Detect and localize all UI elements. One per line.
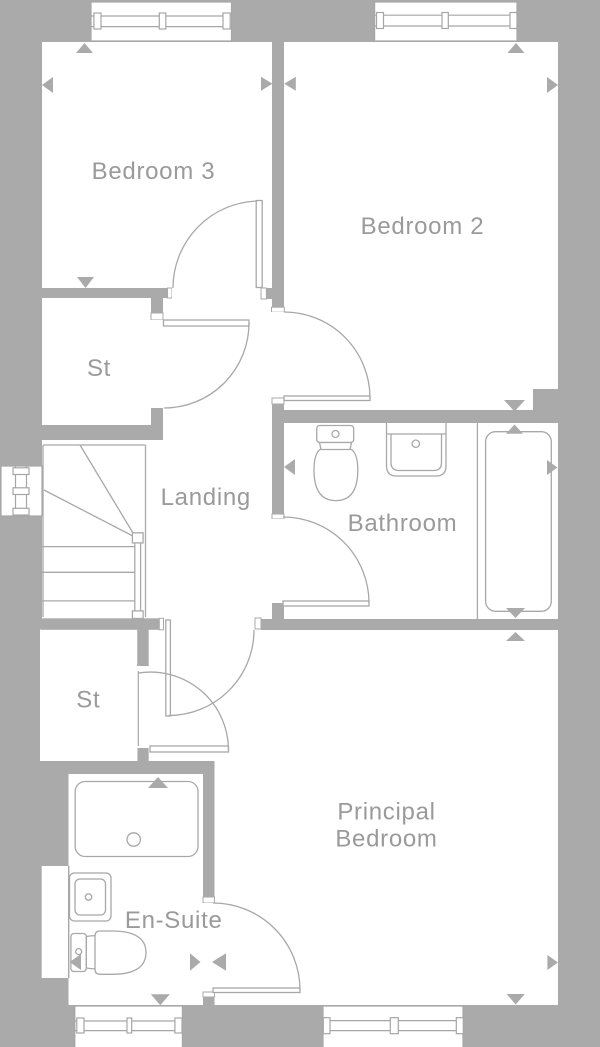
svg-text:St: St — [76, 687, 100, 714]
svg-text:Bedroom 2: Bedroom 2 — [361, 213, 485, 240]
svg-text:Landing: Landing — [161, 484, 251, 511]
svg-text:Principal: Principal — [337, 799, 435, 826]
svg-text:St: St — [87, 355, 111, 382]
svg-text:En-Suite: En-Suite — [125, 907, 223, 934]
svg-text:Bedroom 3: Bedroom 3 — [92, 158, 216, 185]
svg-text:Bedroom: Bedroom — [335, 826, 437, 853]
svg-text:Bathroom: Bathroom — [348, 510, 458, 537]
